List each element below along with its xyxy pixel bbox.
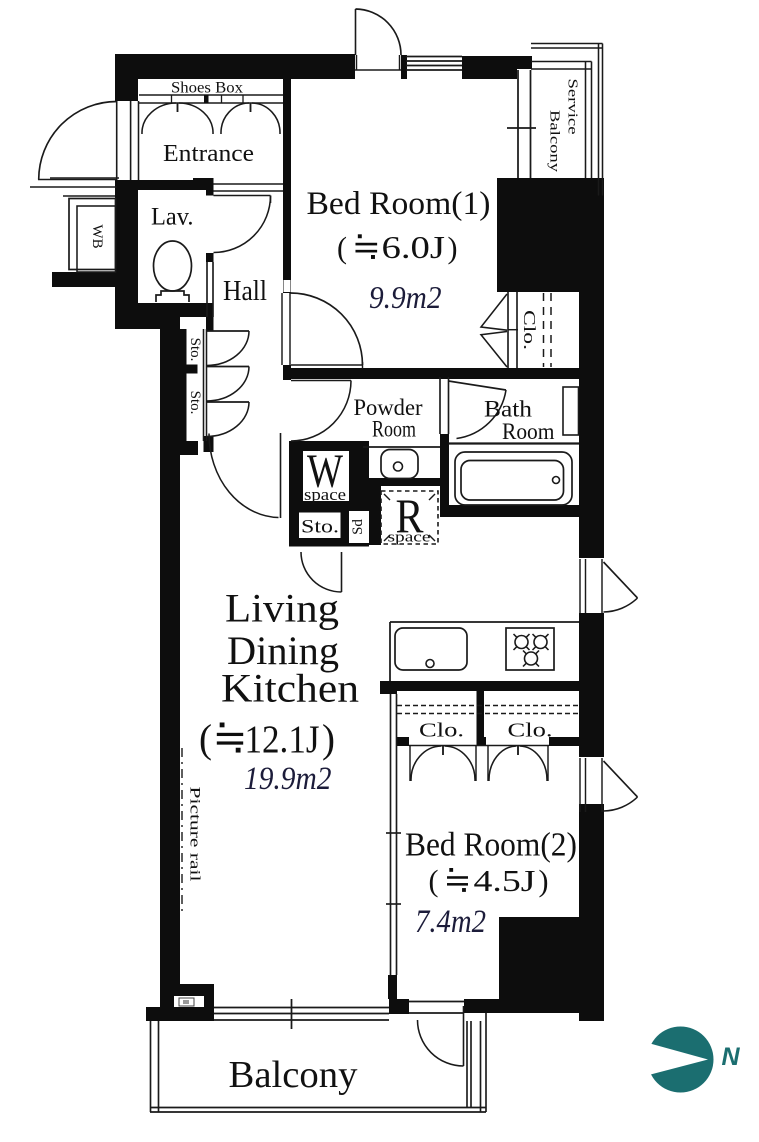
svg-text:Sto.: Sto. <box>301 517 339 538</box>
svg-text:Room: Room <box>372 417 416 442</box>
svg-text:Sto.: Sto. <box>187 391 203 415</box>
svg-text:Room: Room <box>502 419 555 444</box>
svg-text:7.4m2: 7.4m2 <box>415 904 486 940</box>
svg-text:Sd: Sd <box>350 519 366 535</box>
svg-text:Balcony: Balcony <box>547 110 562 172</box>
svg-text:19.9m2: 19.9m2 <box>244 761 332 797</box>
svg-text:(: ( <box>199 716 212 761</box>
svg-text:Kitchen: Kitchen <box>221 666 359 711</box>
svg-text:Sto.: Sto. <box>187 338 203 362</box>
svg-text:Bath: Bath <box>484 397 533 422</box>
svg-text:Clo.: Clo. <box>508 720 553 742</box>
svg-text:12.1J: 12.1J <box>245 718 320 761</box>
svg-text:4.5J: 4.5J <box>474 863 536 898</box>
svg-text:Clo.: Clo. <box>520 310 539 350</box>
svg-text:): ) <box>322 716 335 761</box>
svg-text:6.0J: 6.0J <box>382 229 446 265</box>
svg-text:Bed Room(2): Bed Room(2) <box>405 827 577 864</box>
svg-text:N: N <box>722 1043 741 1071</box>
svg-text:Entrance: Entrance <box>163 141 254 167</box>
svg-text:Service: Service <box>565 79 580 135</box>
svg-text:Balcony: Balcony <box>229 1054 358 1096</box>
svg-text:Living: Living <box>225 586 339 631</box>
svg-text:Hall: Hall <box>223 275 267 307</box>
svg-text:): ) <box>539 863 549 898</box>
svg-text:Shoes Box: Shoes Box <box>171 80 243 97</box>
svg-text:): ) <box>448 230 458 265</box>
svg-text:Picture rail: Picture rail <box>187 787 203 882</box>
svg-text:(: ( <box>337 230 347 265</box>
svg-text:(: ( <box>429 863 439 898</box>
svg-text:space: space <box>304 485 346 504</box>
svg-text:Bed Room(1): Bed Room(1) <box>307 186 491 222</box>
svg-text:space: space <box>388 530 431 546</box>
svg-text:WB: WB <box>89 224 105 248</box>
svg-text:9.9m2: 9.9m2 <box>369 279 442 315</box>
svg-text:Lav.: Lav. <box>151 204 194 231</box>
svg-text:Clo.: Clo. <box>419 720 464 742</box>
